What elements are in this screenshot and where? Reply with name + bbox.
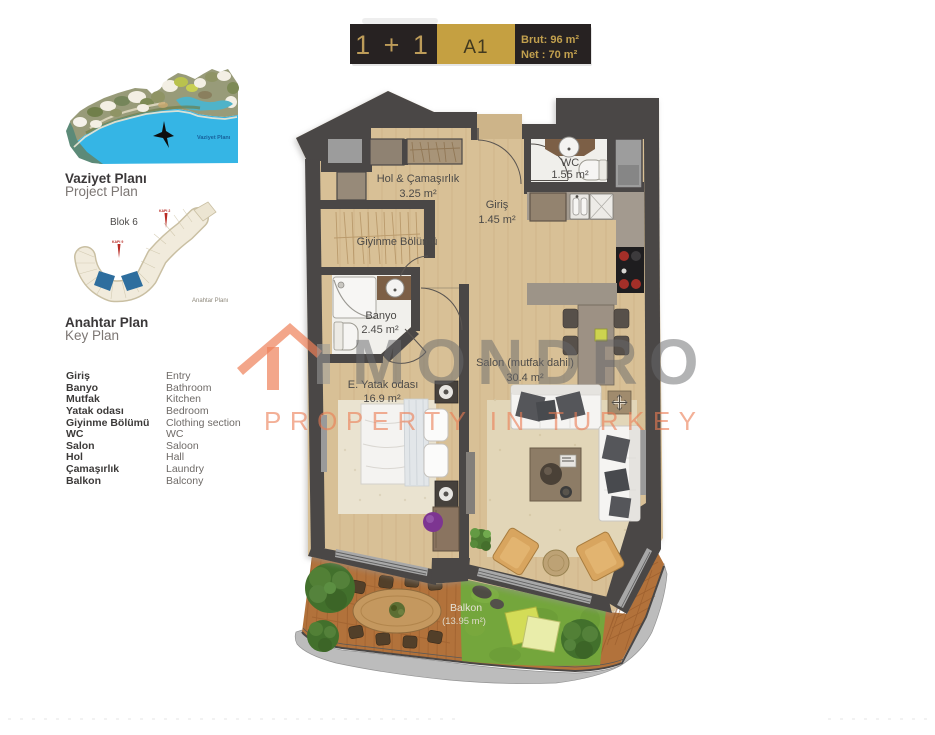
svg-text:Balcony: Balcony bbox=[166, 475, 204, 487]
svg-text:Balkon: Balkon bbox=[450, 602, 482, 614]
svg-text:Hol: Hol bbox=[66, 451, 83, 463]
svg-text:Banyo: Banyo bbox=[365, 310, 396, 322]
svg-text:3.25 m²: 3.25 m² bbox=[399, 188, 437, 200]
svg-text:WC: WC bbox=[66, 428, 84, 440]
svg-text:Kitchen: Kitchen bbox=[166, 393, 201, 405]
svg-text:MONDRO: MONDRO bbox=[352, 326, 710, 398]
svg-text:1 + 1: 1 + 1 bbox=[355, 30, 431, 60]
svg-text:PROPERTY IN TURKEY: PROPERTY IN TURKEY bbox=[264, 406, 705, 436]
svg-text:Balkon: Balkon bbox=[66, 475, 101, 487]
svg-text:Giyinme Bölümü: Giyinme Bölümü bbox=[357, 236, 438, 248]
svg-text:Çamaşırlık: Çamaşırlık bbox=[66, 463, 119, 475]
svg-text:A1: A1 bbox=[463, 37, 488, 58]
svg-text:Bedroom: Bedroom bbox=[166, 405, 209, 417]
svg-text:WC: WC bbox=[166, 428, 184, 440]
svg-text:Mutfak: Mutfak bbox=[66, 393, 100, 405]
svg-text:Anahtar Planı: Anahtar Planı bbox=[192, 298, 229, 304]
svg-text:Laundry: Laundry bbox=[166, 463, 205, 475]
svg-text:Yatak odası: Yatak odası bbox=[66, 405, 124, 417]
svg-text:Giriş: Giriş bbox=[66, 370, 90, 382]
svg-text:Net : 70 m²: Net : 70 m² bbox=[521, 49, 578, 61]
svg-text:1.45 m²: 1.45 m² bbox=[478, 214, 516, 226]
svg-text:Entry: Entry bbox=[166, 370, 191, 382]
svg-text:WC: WC bbox=[561, 157, 579, 169]
svg-text:(13.95 m²): (13.95 m²) bbox=[442, 616, 486, 627]
svg-text:Project Plan: Project Plan bbox=[65, 184, 138, 199]
svg-text:Giriş: Giriş bbox=[486, 199, 509, 211]
svg-text:KAPI 2: KAPI 2 bbox=[159, 209, 170, 213]
svg-text:Hall: Hall bbox=[166, 451, 184, 463]
svg-text:Blok 6: Blok 6 bbox=[110, 217, 138, 228]
svg-text:1.55 m²: 1.55 m² bbox=[551, 169, 589, 181]
svg-text:KAPI 9: KAPI 9 bbox=[112, 240, 123, 244]
svg-text:Hol & Çamaşırlık: Hol & Çamaşırlık bbox=[377, 173, 460, 185]
svg-text:Vaziyet Planı: Vaziyet Planı bbox=[197, 135, 231, 141]
svg-text:Brut: 96 m²: Brut: 96 m² bbox=[521, 34, 579, 46]
svg-text:Key Plan: Key Plan bbox=[65, 328, 119, 343]
